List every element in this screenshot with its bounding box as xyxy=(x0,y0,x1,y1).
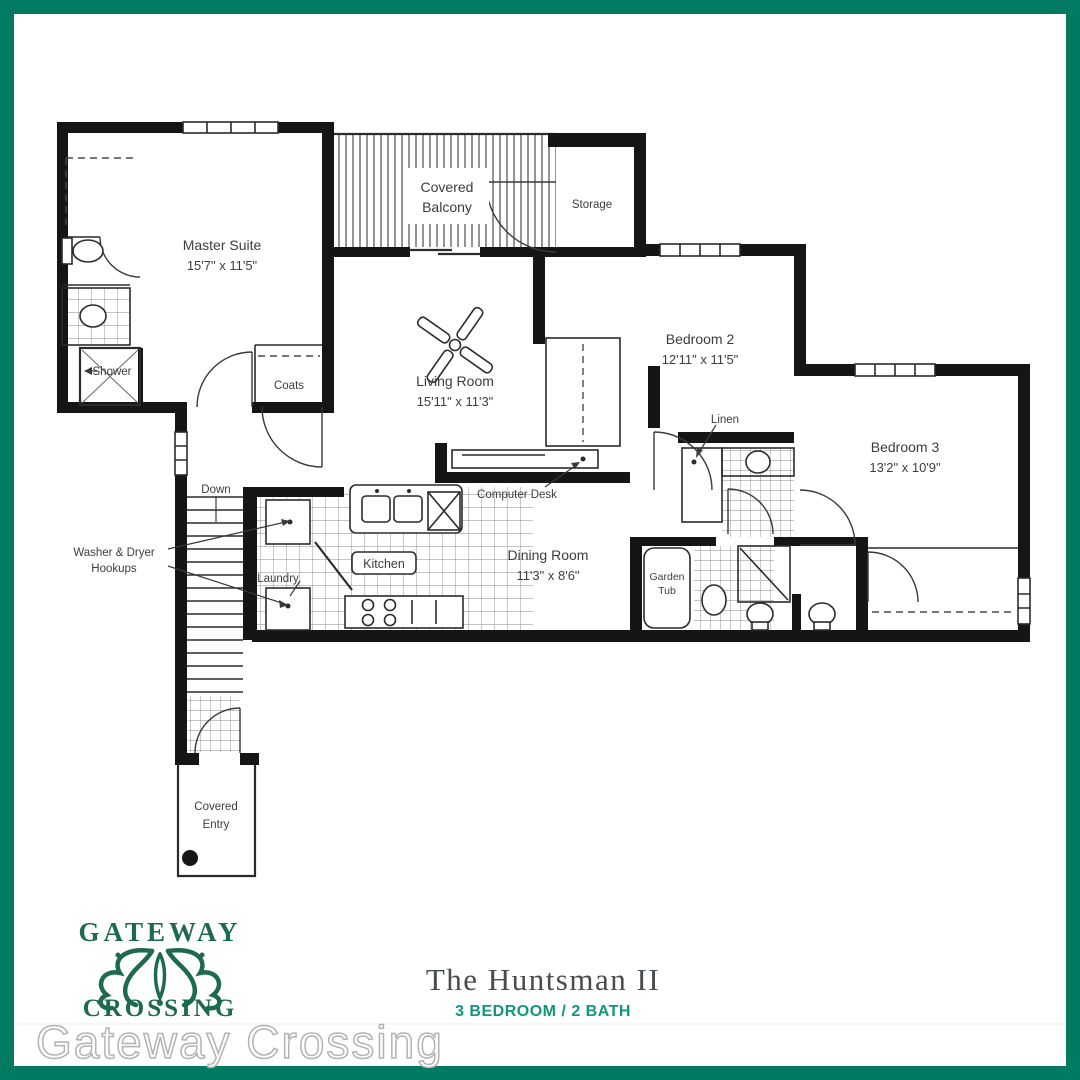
covered-entry-label-1: Covered xyxy=(194,801,237,813)
bedroom2-label: Bedroom 2 xyxy=(666,331,735,347)
computer-desk-label: Computer Desk xyxy=(477,489,557,501)
living-room-dims: 15'11" x 11'3" xyxy=(417,394,494,409)
dryer-box xyxy=(266,588,310,630)
window-bedroom3 xyxy=(855,364,935,376)
logo-text-top: GATEWAY xyxy=(78,917,241,947)
plan-title: The Huntsman II xyxy=(426,962,660,997)
garden-tub-label-2: Tub xyxy=(658,585,676,597)
garden-tub-label-1: Garden xyxy=(649,571,684,583)
dishwasher xyxy=(428,492,460,530)
laundry-label: Laundry xyxy=(257,573,299,585)
window-master xyxy=(183,122,278,133)
master-suite-label: Master Suite xyxy=(183,237,262,253)
kitchen-label: Kitchen xyxy=(363,557,405,571)
bedroom2-dims: 12'11" x 11'5" xyxy=(662,352,739,367)
washer-dryer-label-2: Hookups xyxy=(91,563,137,575)
dining-room-dims: 11'3" x 8'6" xyxy=(516,568,579,583)
staircase xyxy=(187,497,243,692)
bedroom3-label: Bedroom 3 xyxy=(871,439,940,455)
storage-label: Storage xyxy=(572,199,612,211)
bedroom3-door-arc xyxy=(800,490,855,545)
floor-plan-drawing: Master Suite 15'7" x 11'5" Covered Balco… xyxy=(0,0,1080,1080)
gateway-crossing-logo: GATEWAY CROSSING xyxy=(78,917,241,1022)
master-suite-dims: 15'7" x 11'5" xyxy=(187,258,258,273)
floor-plan-page: Master Suite 15'7" x 11'5" Covered Balco… xyxy=(0,0,1080,1080)
toilet-garden-bath xyxy=(702,585,726,615)
plan-subtitle: 3 BEDROOM / 2 BATH xyxy=(455,1003,631,1020)
linen-label: Linen xyxy=(711,414,739,426)
covered-balcony-label-1: Covered xyxy=(421,179,474,195)
linen-closet xyxy=(682,448,722,522)
sliding-glass-door xyxy=(410,250,480,254)
bedroom3-closet xyxy=(868,548,1018,612)
entry-post xyxy=(182,850,198,866)
window-stairwell xyxy=(175,432,187,475)
living-room-label: Living Room xyxy=(416,373,494,389)
watermark-text: Gateway Crossing xyxy=(36,1016,444,1068)
coats-label: Coats xyxy=(274,380,304,392)
kitchen-counter-sink xyxy=(350,485,462,533)
balcony-label-box xyxy=(405,168,489,224)
toilet-master xyxy=(62,238,130,285)
washer-dryer-label-1: Washer & Dryer xyxy=(73,547,155,559)
window-bedroom3-side xyxy=(1018,578,1030,624)
pedestal-sink-2 xyxy=(809,603,835,630)
stove xyxy=(345,596,463,628)
down-label: Down xyxy=(201,484,230,496)
window-bedroom2 xyxy=(660,244,740,256)
bedroom2-closet xyxy=(546,338,620,446)
kitchen-label-box: Kitchen xyxy=(352,552,416,574)
dining-room-label: Dining Room xyxy=(508,547,589,563)
covered-entry-label-2: Entry xyxy=(203,819,230,831)
master-door-arc xyxy=(197,352,252,407)
watermark-strip: Gateway Crossing xyxy=(14,1016,1066,1068)
shower-label: Shower xyxy=(93,366,132,378)
covered-balcony-label-2: Balcony xyxy=(422,199,472,215)
bedroom3-dims: 13'2" x 10'9" xyxy=(869,460,941,475)
